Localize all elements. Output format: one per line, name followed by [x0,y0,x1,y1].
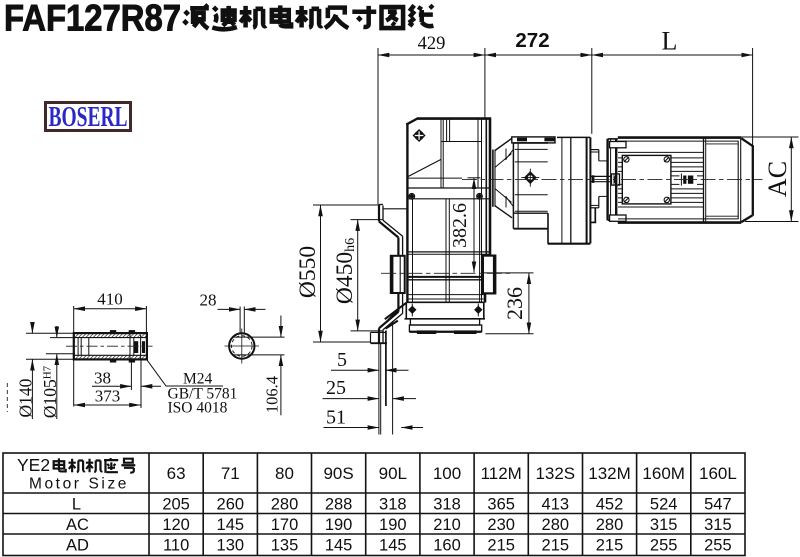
svg-text:132M: 132M [588,464,631,483]
svg-text:L: L [662,27,678,56]
svg-text:373: 373 [95,387,121,406]
svg-text:110: 110 [163,537,189,555]
svg-text:205: 205 [162,496,190,514]
svg-text:215: 215 [487,537,515,555]
svg-text:410: 410 [97,290,123,309]
svg-text:190: 190 [379,516,407,534]
svg-text:230: 230 [487,516,515,534]
svg-text:145: 145 [379,537,407,555]
svg-text:FAF127R87: FAF127R87 [4,0,181,39]
svg-text:YE2: YE2 [17,455,50,475]
svg-text:80: 80 [275,464,294,483]
svg-text:AC: AC [763,161,792,197]
svg-text:215: 215 [596,537,624,555]
svg-text:215: 215 [542,537,570,555]
svg-text:547: 547 [704,496,732,514]
svg-text:318: 318 [433,496,461,514]
svg-text:280: 280 [596,516,624,534]
svg-text:260: 260 [217,496,245,514]
svg-text:AD: AD [66,537,89,555]
svg-text:280: 280 [542,516,570,534]
svg-text:5: 5 [337,349,347,371]
svg-text:Ø550: Ø550 [295,246,321,298]
svg-text:255: 255 [704,537,732,555]
svg-text:100: 100 [433,464,461,483]
svg-text:Motor Size: Motor Size [29,476,129,493]
svg-text:ISO 4018: ISO 4018 [168,400,228,417]
svg-text:429: 429 [418,34,446,54]
svg-text:255: 255 [650,537,678,555]
svg-text:38: 38 [94,369,111,388]
svg-text:315: 315 [650,516,678,534]
svg-text:132S: 132S [535,464,575,483]
svg-text:25: 25 [326,377,346,399]
svg-text:120: 120 [162,516,190,534]
svg-text:452: 452 [596,496,624,514]
svg-text:160L: 160L [699,464,737,483]
svg-text:106.4: 106.4 [263,376,282,413]
svg-text:315: 315 [704,516,732,534]
svg-text:382.6: 382.6 [449,203,471,248]
svg-text:190: 190 [325,516,353,534]
svg-text:L: L [72,496,81,514]
svg-text:280: 280 [271,496,299,514]
svg-text:288: 288 [325,496,353,514]
svg-text:Ø140: Ø140 [16,378,36,417]
svg-text:160M: 160M [642,464,685,483]
svg-text:210: 210 [433,516,461,534]
svg-text:63: 63 [167,464,186,483]
svg-text:51: 51 [326,407,346,429]
svg-text:236: 236 [502,287,527,320]
svg-text:130: 130 [217,537,245,555]
svg-text:112M: 112M [481,464,522,483]
svg-text:90L: 90L [379,464,407,483]
svg-text:BOSERL: BOSERL [49,102,128,133]
svg-text:524: 524 [650,496,678,514]
svg-text:AC: AC [66,516,89,534]
svg-text:71: 71 [221,464,240,483]
svg-text:170: 170 [271,516,299,534]
svg-text:160: 160 [433,537,461,555]
svg-text:365: 365 [487,496,515,514]
svg-text:28: 28 [200,291,217,310]
svg-text:413: 413 [542,496,570,514]
svg-text:145: 145 [325,537,353,555]
svg-text:272: 272 [515,29,549,52]
svg-text:90S: 90S [323,464,353,483]
svg-text:145: 145 [217,516,245,534]
svg-text:135: 135 [271,537,299,555]
svg-text:318: 318 [379,496,407,514]
